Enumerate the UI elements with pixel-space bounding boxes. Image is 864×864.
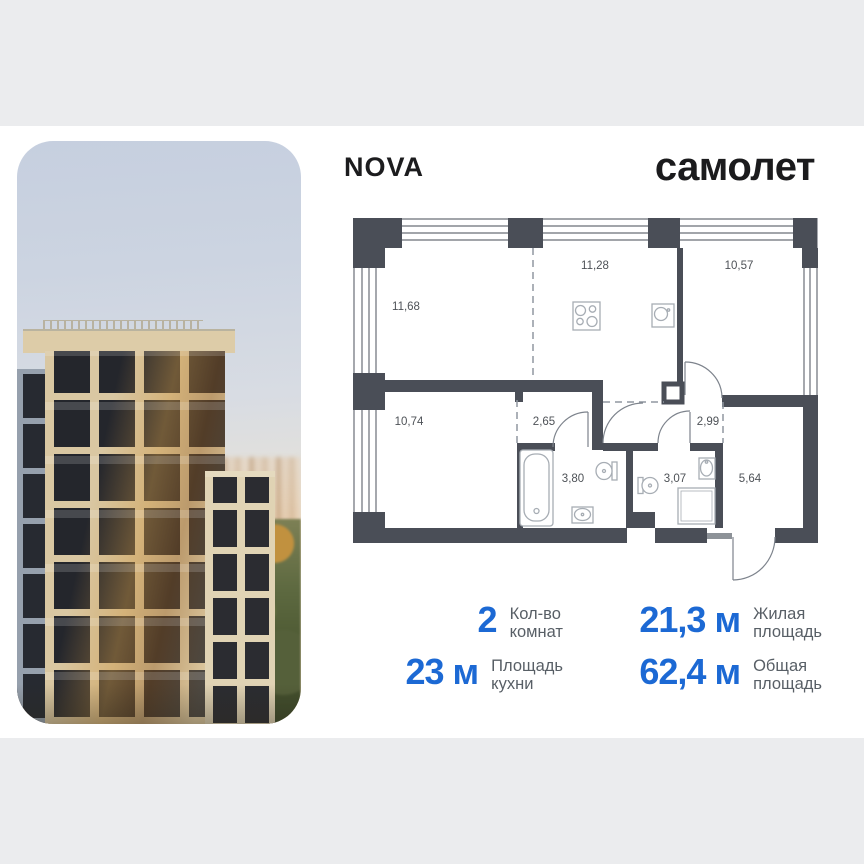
room-area-bedroom: 10,57 [725,260,754,272]
stat-rooms-count: 2 Кол-во комнат [350,601,563,642]
stat-total-area: 62,4 м Общая площадь [563,653,822,694]
stat-total-area-label: Общая площадь [753,653,822,694]
stat-living-area: 21,3 м Жилая площадь [563,601,822,642]
nova-logo: NOVA [344,152,424,183]
building-facade-left [17,369,45,724]
duct-shaft [664,384,682,402]
stat-kitchen-area: 23 м Площадь кухни [350,653,563,694]
stat-kitchen-area-value: 23 м [350,653,478,691]
balcony-glass [45,351,225,724]
building-roof [23,329,235,353]
room-area-labels: 11,68 11,28 10,57 10,74 2,65 2,99 3,80 3… [392,260,762,485]
stat-kitchen-area-label: Площадь кухни [491,653,563,694]
stat-living-area-value: 21,3 м [563,601,740,639]
stat-total-area-value: 62,4 м [563,653,740,691]
room-area-kitchen: 11,28 [581,260,609,272]
room-area-hall1: 2,65 [533,416,555,428]
building-photo [17,141,301,724]
fixtures [520,302,715,526]
room-area-bedroom2: 10,74 [395,416,424,428]
stat-living-area-label: Жилая площадь [753,601,822,642]
floor-plan: 11,68 11,28 10,57 10,74 2,65 2,99 3,80 3… [350,214,820,584]
room-area-bathroom: 3,80 [562,473,584,485]
apartment-stats: 2 Кол-во комнат 21,3 м Жилая площадь 23 … [350,601,822,694]
room-area-hall2: 2,99 [697,416,719,428]
room-area-living: 11,68 [392,301,420,313]
room-area-wc: 3,07 [664,473,686,485]
samolet-logo: самолет [655,145,815,190]
floor-plan-drawing: 11,68 11,28 10,57 10,74 2,65 2,99 3,80 3… [350,214,820,584]
ground-shadow [17,684,301,724]
stat-rooms-count-value: 2 [350,601,497,639]
room-area-corridor: 5,64 [739,473,762,485]
stat-rooms-count-label: Кол-во комнат [510,601,563,642]
